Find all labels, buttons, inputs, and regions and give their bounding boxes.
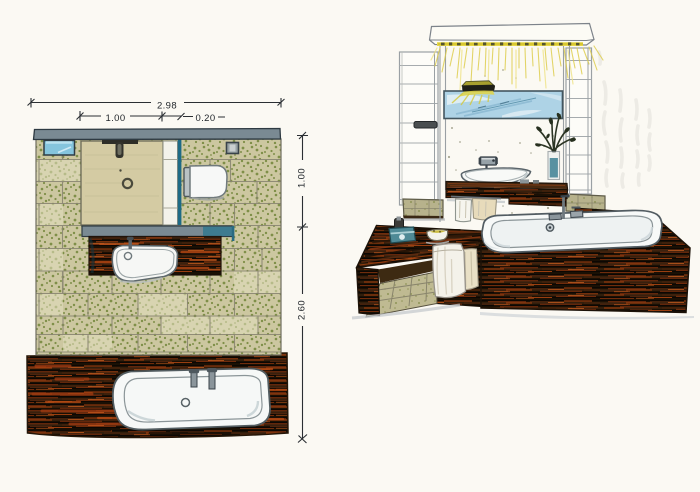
svg-text:1.00: 1.00 <box>297 168 308 188</box>
svg-text:1.00: 1.00 <box>105 113 125 124</box>
svg-text:2.98: 2.98 <box>157 101 177 112</box>
svg-text:0.20: 0.20 <box>195 113 215 124</box>
svg-text:2.60: 2.60 <box>297 300 308 320</box>
